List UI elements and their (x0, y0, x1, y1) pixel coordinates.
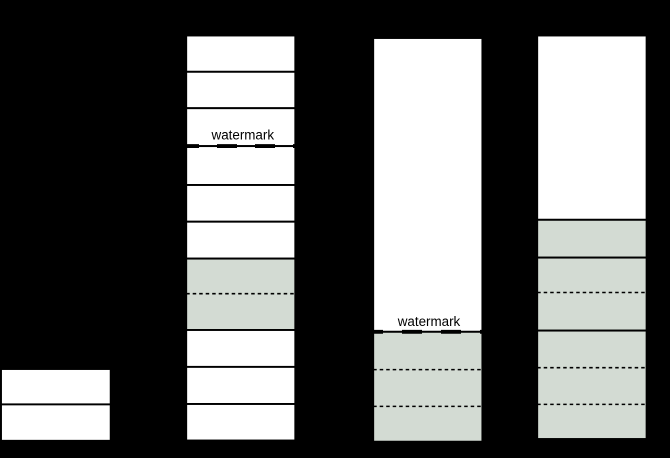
svg-text:watermark: watermark (397, 314, 461, 329)
svg-text:watermark: watermark (211, 128, 275, 143)
